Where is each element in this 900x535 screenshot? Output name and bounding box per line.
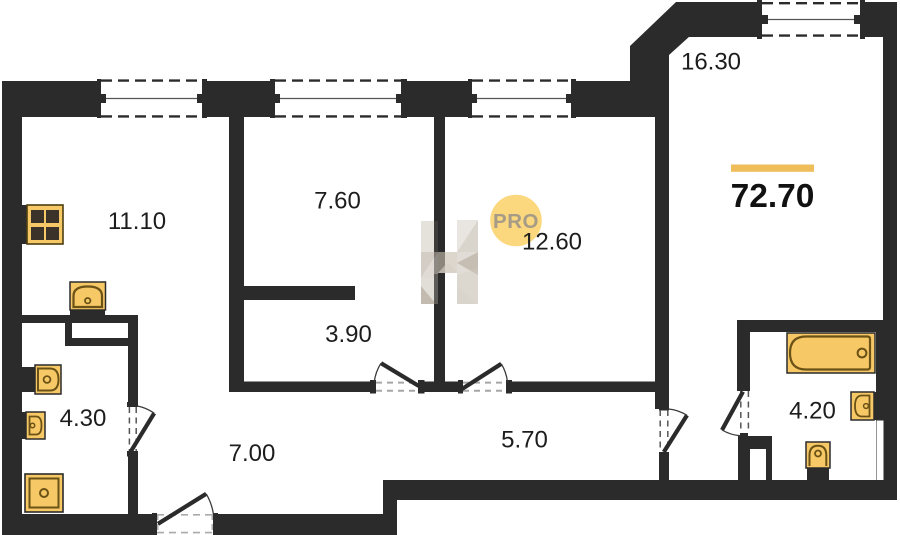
svg-text:4.20: 4.20 (789, 398, 836, 425)
svg-text:7.60: 7.60 (314, 188, 361, 215)
svg-text:4.30: 4.30 (60, 405, 107, 432)
svg-text:3.90: 3.90 (325, 321, 372, 348)
svg-text:7.00: 7.00 (229, 440, 276, 467)
svg-text:16.30: 16.30 (681, 49, 741, 76)
svg-text:12.60: 12.60 (522, 229, 582, 256)
svg-text:11.10: 11.10 (108, 208, 166, 235)
svg-text:5.70: 5.70 (501, 427, 548, 454)
svg-text:72.70: 72.70 (731, 178, 815, 215)
